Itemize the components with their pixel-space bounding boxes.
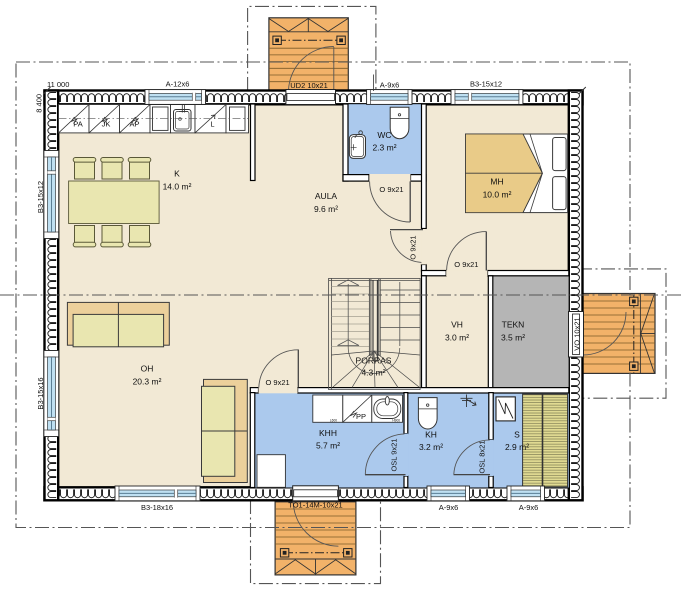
svg-text:PA: PA <box>73 120 82 129</box>
svg-text:A-9x6: A-9x6 <box>519 503 539 512</box>
svg-text:2.3 m²: 2.3 m² <box>372 143 396 153</box>
svg-text:2.9 m²: 2.9 m² <box>505 442 529 452</box>
svg-text:9.6 m²: 9.6 m² <box>314 204 338 214</box>
svg-text:A-9x6: A-9x6 <box>439 503 459 512</box>
svg-text:VO 10x21: VO 10x21 <box>573 317 582 350</box>
svg-text:L600: L600 <box>330 418 337 422</box>
svg-text:S: S <box>514 430 520 440</box>
svg-text:B3-15x16: B3-15x16 <box>36 377 45 409</box>
svg-text:5.7 m²: 5.7 m² <box>316 441 340 451</box>
svg-text:TO1-14M-10x21: TO1-14M-10x21 <box>288 501 342 510</box>
svg-text:AP: AP <box>129 120 139 129</box>
svg-text:OH: OH <box>141 364 154 374</box>
svg-text:O 9x21: O 9x21 <box>379 185 403 194</box>
svg-text:20.3 m²: 20.3 m² <box>133 377 162 387</box>
svg-text:KHH: KHH <box>319 428 337 438</box>
svg-text:3.2 m²: 3.2 m² <box>419 442 443 452</box>
svg-text:K: K <box>174 169 180 179</box>
svg-text:H900: H900 <box>392 418 400 422</box>
svg-text:TEKN: TEKN <box>502 320 525 330</box>
svg-text:A-12x6: A-12x6 <box>166 79 190 88</box>
svg-text:10.0 m²: 10.0 m² <box>483 190 512 200</box>
svg-text:8 400: 8 400 <box>35 94 44 113</box>
svg-text:3.5 m²: 3.5 m² <box>501 333 525 343</box>
svg-text:B3-15x12: B3-15x12 <box>470 79 502 88</box>
svg-text:O 9x21: O 9x21 <box>266 378 290 387</box>
svg-text:MH: MH <box>490 177 503 187</box>
svg-text:L: L <box>210 120 214 129</box>
svg-text:B3-15x12: B3-15x12 <box>36 181 45 213</box>
svg-text:PORRAS: PORRAS <box>356 356 392 366</box>
svg-text:11 000: 11 000 <box>47 80 69 89</box>
svg-text:OSL 8x21: OSL 8x21 <box>478 440 487 473</box>
svg-text:JK: JK <box>102 120 111 129</box>
svg-text:PP: PP <box>356 412 366 421</box>
svg-text:14.0 m²: 14.0 m² <box>163 182 192 192</box>
svg-text:3.0 m²: 3.0 m² <box>445 333 469 343</box>
svg-text:UD2 10x21: UD2 10x21 <box>290 81 328 90</box>
svg-text:AULA: AULA <box>315 191 338 201</box>
svg-text:B3-18x16: B3-18x16 <box>141 503 173 512</box>
svg-text:O 9x21: O 9x21 <box>454 260 478 269</box>
svg-text:4.3 m²: 4.3 m² <box>361 368 385 378</box>
svg-text:WC: WC <box>377 130 391 140</box>
svg-text:OSL 9x21: OSL 9x21 <box>390 438 399 471</box>
svg-text:O 9x21: O 9x21 <box>409 235 418 259</box>
svg-text:KH: KH <box>425 430 437 440</box>
svg-text:VH: VH <box>451 320 463 330</box>
svg-text:A-9x6: A-9x6 <box>380 81 400 90</box>
